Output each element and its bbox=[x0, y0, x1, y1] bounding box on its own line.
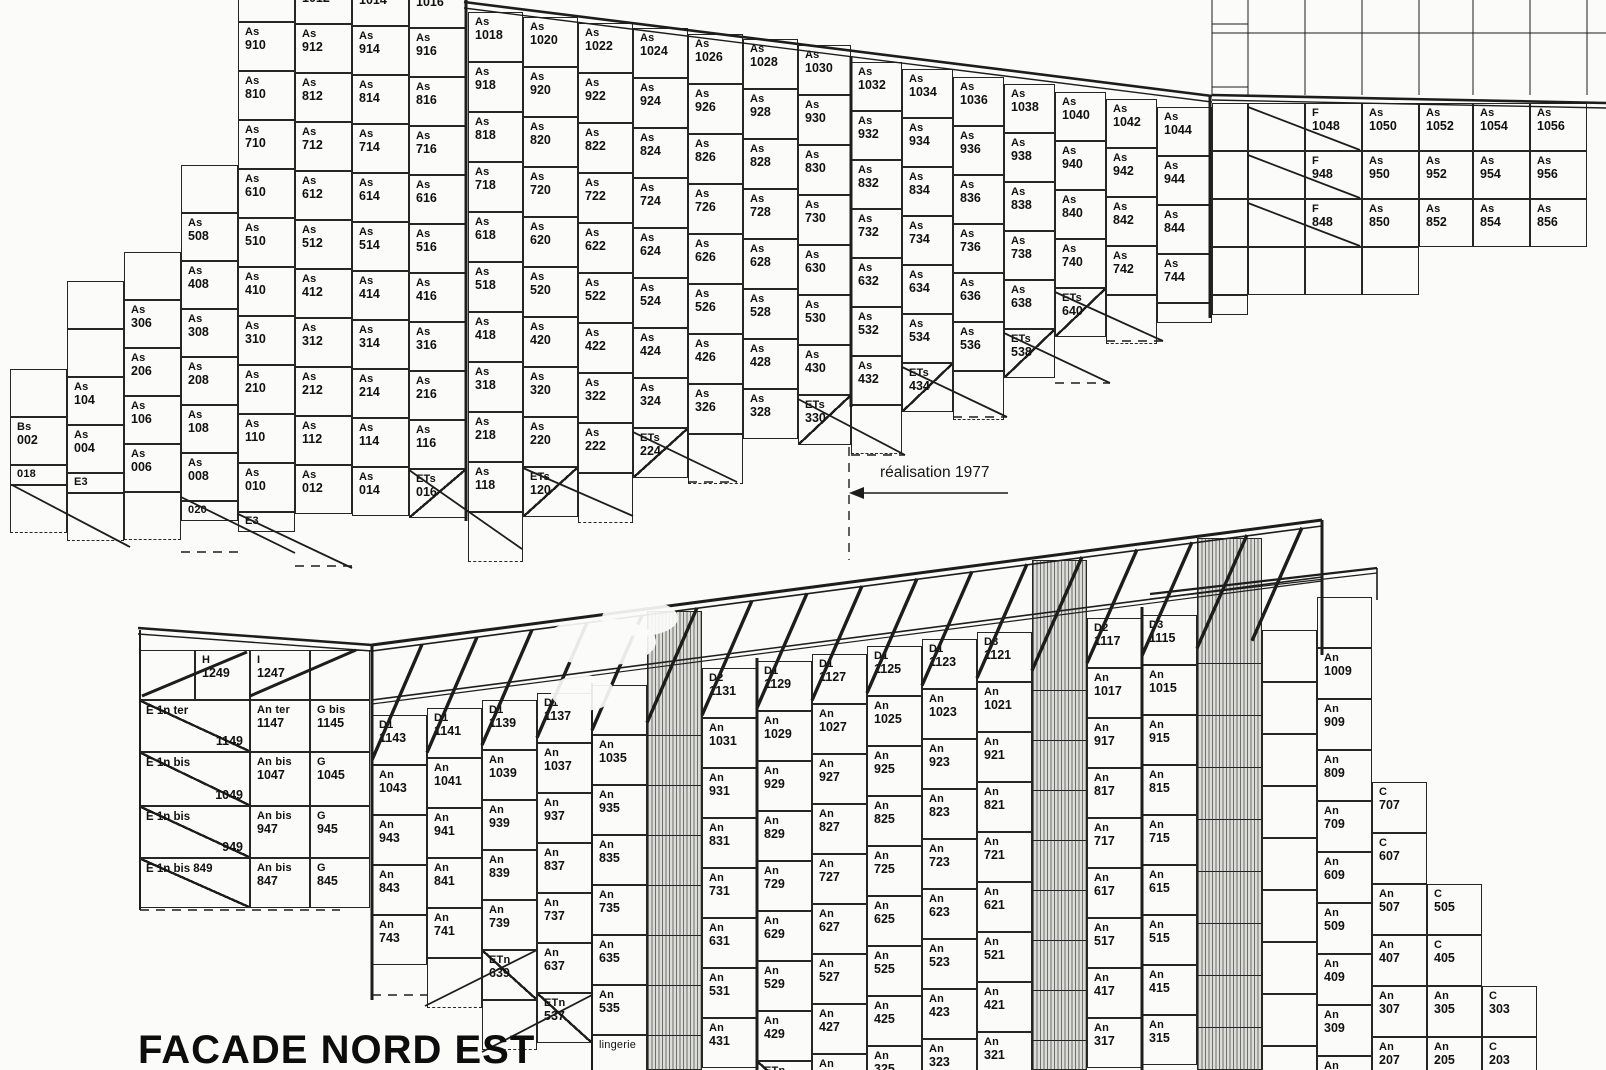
unit-cell-An-207: An207 bbox=[1372, 1037, 1427, 1070]
terrain-cell bbox=[124, 492, 181, 540]
hatch-floor-line bbox=[1032, 940, 1087, 941]
hatch-floor-line bbox=[1032, 990, 1087, 991]
hatch-floor-line bbox=[1197, 715, 1262, 716]
empty-cell bbox=[1262, 1046, 1317, 1070]
unit-cell-As-216: As216 bbox=[409, 371, 466, 420]
unit-cell-As-932: As932 bbox=[851, 111, 902, 160]
unit-cell-An-1015: An1015 bbox=[1142, 665, 1197, 715]
unit-cell-An-1043: An1043 bbox=[372, 765, 427, 815]
unit-cell-An-635: An635 bbox=[592, 935, 647, 985]
unit-cell-As-316: As316 bbox=[409, 322, 466, 371]
unit-cell-As-1030: As1030 bbox=[798, 45, 851, 95]
unit-cell-An-431: An431 bbox=[702, 1018, 757, 1068]
unit-cell-An-bis-847: An bis847 bbox=[250, 858, 310, 908]
unit-cell-As-928: As928 bbox=[743, 89, 798, 139]
unit-cell-As-530: As530 bbox=[798, 295, 851, 345]
unit-cell-An-829: An829 bbox=[757, 811, 812, 861]
unit-cell-As-724: As724 bbox=[633, 178, 688, 228]
unit-cell-Bs-002: Bs002 bbox=[10, 417, 67, 465]
unit-cell-An-825: An825 bbox=[867, 796, 922, 846]
unit-cell-An-ter-1147: An ter1147 bbox=[250, 700, 310, 752]
unit-cell-E3: E3 bbox=[67, 473, 124, 493]
hatch-floor-line bbox=[647, 835, 702, 836]
unit-cell-As-324: As324 bbox=[633, 378, 688, 428]
unit-cell-As-912: As912 bbox=[295, 24, 352, 73]
unit-cell-As-1026: As1026 bbox=[688, 34, 743, 84]
unit-cell-As-1052: As1052 bbox=[1419, 103, 1473, 151]
unit-cell-F-1048: F1048 bbox=[1305, 103, 1362, 151]
unit-cell-As-422: As422 bbox=[578, 323, 633, 373]
unit-cell-An-1029: An1029 bbox=[757, 711, 812, 761]
unit-cell-An-741: An741 bbox=[427, 908, 482, 958]
unit-cell-As-206: As206 bbox=[124, 348, 181, 396]
unit-cell-An-821: An821 bbox=[977, 782, 1032, 832]
unit-cell-An-bis-1047: An bis1047 bbox=[250, 752, 310, 806]
unit-cell-As-638: As638 bbox=[1004, 280, 1055, 329]
unit-cell-As-810: As810 bbox=[238, 71, 295, 120]
unit-cell-An-415: An415 bbox=[1142, 965, 1197, 1015]
unit-cell-As-320: As320 bbox=[523, 367, 578, 417]
unit-cell-As-1020: As1020 bbox=[523, 17, 578, 67]
stair-cell-ETs-538: ETs538 bbox=[1004, 329, 1055, 378]
unit-cell-As-212: As212 bbox=[295, 367, 352, 416]
unit-cell-An-1027: An1027 bbox=[812, 704, 867, 754]
unit-cell-As-104: As104 bbox=[67, 377, 124, 425]
empty-cell bbox=[1248, 151, 1305, 199]
unit-cell-As-712: As712 bbox=[295, 122, 352, 171]
unit-cell-An-715: An715 bbox=[1142, 815, 1197, 865]
unit-cell-As-918: As918 bbox=[468, 62, 523, 112]
unit-cell-C-303: C303 bbox=[1482, 986, 1537, 1037]
empty-cell bbox=[181, 165, 238, 213]
unit-cell-C-405: C405 bbox=[1427, 935, 1482, 986]
stair-cell-ETs-224: ETs224 bbox=[633, 428, 688, 478]
unit-cell-An-321: An321 bbox=[977, 1032, 1032, 1070]
stair-cell: E 1n ter1149 bbox=[140, 700, 250, 752]
stair-cell-ETn-639: ETn639 bbox=[482, 950, 537, 1000]
stairwell-hatch-column bbox=[647, 611, 702, 1070]
annotation-arrowhead bbox=[849, 487, 864, 499]
unit-cell-An-527: An527 bbox=[812, 954, 867, 1004]
unit-cell-As-840: As840 bbox=[1055, 190, 1106, 239]
empty-cell bbox=[1262, 838, 1317, 890]
unit-cell-As-628: As628 bbox=[743, 239, 798, 289]
unit-cell-As-744: As744 bbox=[1157, 254, 1212, 303]
unit-cell-An-1031: An1031 bbox=[702, 718, 757, 768]
unit-cell-D3-1115: D31115 bbox=[1142, 615, 1197, 665]
unit-cell-An-843: An843 bbox=[372, 865, 427, 915]
unit-cell-As-726: As726 bbox=[688, 184, 743, 234]
unit-cell-As-1056: As1056 bbox=[1530, 103, 1587, 151]
unit-cell-As-1036: As1036 bbox=[953, 77, 1004, 126]
unit-cell-As-306: As306 bbox=[124, 300, 181, 348]
unit-cell-An-737: An737 bbox=[537, 893, 592, 943]
unit-cell-An-317: An317 bbox=[1087, 1018, 1142, 1068]
unit-cell-An-621: An621 bbox=[977, 882, 1032, 932]
unit-cell-As-816: As816 bbox=[409, 77, 466, 126]
unit-cell-H-1249: H1249 bbox=[195, 650, 250, 700]
unit-cell-An-1017: An1017 bbox=[1087, 668, 1142, 718]
unit-cell-As-516: As516 bbox=[409, 224, 466, 273]
hatch-floor-line bbox=[1197, 923, 1262, 924]
unit-cell-As-626: As626 bbox=[688, 234, 743, 284]
unit-cell-An-927: An927 bbox=[812, 754, 867, 804]
unit-cell-As-1032: As1032 bbox=[851, 62, 902, 111]
unit-cell-As-1022: As1022 bbox=[578, 23, 633, 73]
unit-cell-As-916: As916 bbox=[409, 28, 466, 77]
unit-cell-As-210: As210 bbox=[238, 365, 295, 414]
unit-cell-D3-1121: D31121 bbox=[977, 632, 1032, 682]
unit-cell-An-517: An517 bbox=[1087, 918, 1142, 968]
unit-cell-An-717: An717 bbox=[1087, 818, 1142, 868]
unit-cell-An-629: An629 bbox=[757, 911, 812, 961]
terrain-cell bbox=[688, 434, 743, 484]
unit-cell-As-914: As914 bbox=[352, 26, 409, 75]
empty-cell bbox=[124, 252, 181, 300]
unit-cell-An-509: An509 bbox=[1317, 903, 1372, 954]
hatch-floor-line bbox=[647, 885, 702, 886]
terrain-cell bbox=[953, 371, 1004, 420]
unit-cell-018: 018 bbox=[10, 465, 67, 485]
unit-cell-An-609: An609 bbox=[1317, 852, 1372, 903]
unit-cell-As-520: As520 bbox=[523, 267, 578, 317]
unit-cell-An-915: An915 bbox=[1142, 715, 1197, 765]
unit-cell-As-312: As312 bbox=[295, 318, 352, 367]
unit-cell-As-006: As006 bbox=[124, 444, 181, 492]
hatch-floor-line bbox=[647, 935, 702, 936]
unit-cell-An-1021: An1021 bbox=[977, 682, 1032, 732]
empty-cell bbox=[1248, 247, 1305, 295]
empty-cell bbox=[1305, 247, 1362, 295]
empty-cell bbox=[1248, 103, 1305, 151]
unit-cell-As-818: As818 bbox=[468, 112, 523, 162]
unit-cell-As-734: As734 bbox=[902, 216, 953, 265]
unit-cell-D1-1127: D11127 bbox=[812, 654, 867, 704]
empty-cell bbox=[1262, 890, 1317, 942]
unit-cell-D1-1143: D11143 bbox=[372, 715, 427, 765]
unit-cell-As-842: As842 bbox=[1106, 197, 1157, 246]
hatch-floor-line bbox=[1197, 767, 1262, 768]
stair-cell-ETs-330: ETs330 bbox=[798, 395, 851, 445]
unit-cell-D1-1129: D11129 bbox=[757, 661, 812, 711]
unit-cell-As-730: As730 bbox=[798, 195, 851, 245]
stair-cell-ETs-016: ETs016 bbox=[409, 469, 466, 518]
unit-cell-As-624: As624 bbox=[633, 228, 688, 278]
facade-title: FACADE NORD EST bbox=[138, 1028, 535, 1070]
unit-cell-An-931: An931 bbox=[702, 768, 757, 818]
unit-cell-As-524: As524 bbox=[633, 278, 688, 328]
unit-cell-As-510: As510 bbox=[238, 218, 295, 267]
unit-cell-As-856: As856 bbox=[1530, 199, 1587, 247]
unit-cell-As-940: As940 bbox=[1055, 141, 1106, 190]
unit-cell-As-852: As852 bbox=[1419, 199, 1473, 247]
unit-cell-As-528: As528 bbox=[743, 289, 798, 339]
unit-cell-As-534: As534 bbox=[902, 314, 953, 363]
unit-cell-As-1024: As1024 bbox=[633, 28, 688, 78]
unit-cell-As-630: As630 bbox=[798, 245, 851, 295]
unit-cell-An-917: An917 bbox=[1087, 718, 1142, 768]
unit-cell-As-1016: As1016 bbox=[409, 0, 466, 28]
unit-cell-As-1010: As1010 bbox=[238, 0, 295, 22]
hatch-floor-line bbox=[1197, 871, 1262, 872]
unit-cell-An-937: An937 bbox=[537, 793, 592, 843]
unit-cell-C-707: C707 bbox=[1372, 782, 1427, 833]
unit-cell-An-709: An709 bbox=[1317, 801, 1372, 852]
unit-cell-An-525: An525 bbox=[867, 946, 922, 996]
facade-drawing: Bs002018As104As004E3As306As206As106As006… bbox=[0, 0, 1606, 1070]
unit-cell-As-636: As636 bbox=[953, 273, 1004, 322]
hatch-floor-line bbox=[647, 985, 702, 986]
unit-cell-As-736: As736 bbox=[953, 224, 1004, 273]
unit-cell-As-942: As942 bbox=[1106, 148, 1157, 197]
unit-cell-An-837: An837 bbox=[537, 843, 592, 893]
unit-cell-An-1035: An1035 bbox=[592, 735, 647, 785]
unit-cell-As-834: As834 bbox=[902, 167, 953, 216]
unit-cell-As-632: As632 bbox=[851, 258, 902, 307]
unit-cell-As-820: As820 bbox=[523, 117, 578, 167]
unit-cell-An-427: An427 bbox=[812, 1004, 867, 1054]
unit-cell-An-425: An425 bbox=[867, 996, 922, 1046]
unit-cell-D1-1123: D11123 bbox=[922, 639, 977, 689]
unit-cell-As-426: As426 bbox=[688, 334, 743, 384]
unit-cell-As-742: As742 bbox=[1106, 246, 1157, 295]
unit-cell-As-710: As710 bbox=[238, 120, 295, 169]
unit-cell-As-926: As926 bbox=[688, 84, 743, 134]
unit-cell-D1-1137: D11137 bbox=[537, 693, 592, 743]
unit-cell-As-428: As428 bbox=[743, 339, 798, 389]
unit-cell-As-832: As832 bbox=[851, 160, 902, 209]
hatch-floor-line bbox=[1197, 819, 1262, 820]
unit-cell-As-728: As728 bbox=[743, 189, 798, 239]
unit-cell-As-1018: As1018 bbox=[468, 12, 523, 62]
unit-cell-As-412: As412 bbox=[295, 269, 352, 318]
unit-cell-G-1045: G1045 bbox=[310, 752, 370, 806]
stair-cell-ETs-120: ETs120 bbox=[523, 467, 578, 517]
unit-cell-As-934: As934 bbox=[902, 118, 953, 167]
unit-cell-As-844: As844 bbox=[1157, 205, 1212, 254]
stair-cell-ETs-640: ETs640 bbox=[1055, 288, 1106, 337]
unit-cell-As-720: As720 bbox=[523, 167, 578, 217]
empty-cell bbox=[1262, 682, 1317, 734]
empty-cell bbox=[1262, 994, 1317, 1046]
unit-cell-As-408: As408 bbox=[181, 261, 238, 309]
unit-cell-As-714: As714 bbox=[352, 124, 409, 173]
unit-cell-An-309: An309 bbox=[1317, 1005, 1372, 1056]
empty-cell bbox=[1362, 247, 1419, 295]
unit-cell-As-314: As314 bbox=[352, 320, 409, 369]
unit-cell-An-bis-947: An bis947 bbox=[250, 806, 310, 858]
unit-cell-An-725: An725 bbox=[867, 846, 922, 896]
unit-cell-As-112: As112 bbox=[295, 416, 352, 465]
empty-cell bbox=[310, 650, 370, 700]
unit-cell-As-616: As616 bbox=[409, 175, 466, 224]
unit-cell-As-420: As420 bbox=[523, 317, 578, 367]
empty-cell bbox=[10, 369, 67, 417]
unit-cell-An-615: An615 bbox=[1142, 865, 1197, 915]
unit-cell-As-308: As308 bbox=[181, 309, 238, 357]
unit-cell-As-518: As518 bbox=[468, 262, 523, 312]
unit-cell-As-924: As924 bbox=[633, 78, 688, 128]
unit-cell-As-106: As106 bbox=[124, 396, 181, 444]
unit-cell-I-1247: I1247 bbox=[250, 650, 310, 700]
unit-cell-As-532: As532 bbox=[851, 307, 902, 356]
unit-cell-As-014: As014 bbox=[352, 467, 409, 516]
unit-cell-An-839: An839 bbox=[482, 850, 537, 900]
unit-cell-An-515: An515 bbox=[1142, 915, 1197, 965]
unit-cell-An-1037: An1037 bbox=[537, 743, 592, 793]
unit-cell-As-1044: As1044 bbox=[1157, 107, 1212, 156]
unit-cell-As-414: As414 bbox=[352, 271, 409, 320]
terrain-cell bbox=[10, 485, 67, 533]
unit-cell-As-218: As218 bbox=[468, 412, 523, 462]
unit-cell-An-739: An739 bbox=[482, 900, 537, 950]
unit-cell-D1-1139: D11139 bbox=[482, 700, 537, 750]
unit-cell-As-526: As526 bbox=[688, 284, 743, 334]
unit-cell-An-205: An205 bbox=[1427, 1037, 1482, 1070]
unit-cell-An-325: An325 bbox=[867, 1046, 922, 1070]
unit-cell-As-1014: As1014 bbox=[352, 0, 409, 26]
unit-cell-As-418: As418 bbox=[468, 312, 523, 362]
unit-cell-An-535: An535 bbox=[592, 985, 647, 1035]
unit-cell-An-929: An929 bbox=[757, 761, 812, 811]
unit-cell-An-423: An423 bbox=[922, 989, 977, 1039]
unit-cell-An-523: An523 bbox=[922, 939, 977, 989]
unit-cell-An-409: An409 bbox=[1317, 954, 1372, 1005]
unit-cell-As-920: As920 bbox=[523, 67, 578, 117]
unit-cell-An-305: An305 bbox=[1427, 986, 1482, 1037]
unit-cell-020: 020 bbox=[181, 501, 238, 521]
unit-cell-As-222: As222 bbox=[578, 423, 633, 473]
unit-cell-As-850: As850 bbox=[1362, 199, 1419, 247]
unit-cell-C-607: C607 bbox=[1372, 833, 1427, 884]
terrain-cell bbox=[1106, 295, 1157, 344]
hatch-floor-line bbox=[1032, 740, 1087, 741]
empty-cell bbox=[592, 685, 647, 735]
unit-cell-An-727: An727 bbox=[812, 854, 867, 904]
unit-cell-As-512: As512 bbox=[295, 220, 352, 269]
unit-cell-An-923: An923 bbox=[922, 739, 977, 789]
unit-cell-G-845: G845 bbox=[310, 858, 370, 908]
unit-cell-As-854: As854 bbox=[1473, 199, 1530, 247]
empty-cell bbox=[1212, 151, 1248, 199]
stair-cell: E 1n bis1049 bbox=[140, 752, 250, 806]
unit-cell-As-220: As220 bbox=[523, 417, 578, 467]
unit-cell-As-108: As108 bbox=[181, 405, 238, 453]
unit-cell-As-424: As424 bbox=[633, 328, 688, 378]
stair-cell-ETn-537: ETn537 bbox=[537, 993, 592, 1043]
unit-cell-As-012: As012 bbox=[295, 465, 352, 514]
unit-cell-As-618: As618 bbox=[468, 212, 523, 262]
unit-cell-F-948: F948 bbox=[1305, 151, 1362, 199]
unit-cell-An-823: An823 bbox=[922, 789, 977, 839]
unit-cell-An-743: An743 bbox=[372, 915, 427, 965]
unit-cell-As-110: As110 bbox=[238, 414, 295, 463]
hatch-floor-line bbox=[1197, 1027, 1262, 1028]
terrain-cell bbox=[468, 512, 523, 562]
unit-cell-An-1009: An1009 bbox=[1317, 648, 1372, 699]
unit-cell-As-1054: As1054 bbox=[1473, 103, 1530, 151]
scan-whiteout-smudge bbox=[544, 618, 656, 666]
unit-cell-D2-1131: D21131 bbox=[702, 668, 757, 718]
unit-cell-F-848: F848 bbox=[1305, 199, 1362, 247]
hatch-floor-line bbox=[647, 735, 702, 736]
unit-cell-An-815: An815 bbox=[1142, 765, 1197, 815]
unit-cell-An-307: An307 bbox=[1372, 986, 1427, 1037]
unit-cell-An-1041: An1041 bbox=[427, 758, 482, 808]
unit-cell-An-521: An521 bbox=[977, 932, 1032, 982]
unit-cell-As-952: As952 bbox=[1419, 151, 1473, 199]
unit-cell-As-430: As430 bbox=[798, 345, 851, 395]
unit-cell-An-637: An637 bbox=[537, 943, 592, 993]
unit-cell-D2-1117: D21117 bbox=[1087, 618, 1142, 668]
unit-cell-An-1025: An1025 bbox=[867, 696, 922, 746]
unit-cell-As-620: As620 bbox=[523, 217, 578, 267]
unit-cell-An-327: An327 bbox=[812, 1054, 867, 1070]
unit-cell-As-718: As718 bbox=[468, 162, 523, 212]
stair-cell: E 1n bis949 bbox=[140, 806, 250, 858]
unit-cell-As-514: As514 bbox=[352, 222, 409, 271]
hatch-floor-line bbox=[1032, 1040, 1087, 1041]
unit-cell-As-822: As822 bbox=[578, 123, 633, 173]
unit-cell-As-322: As322 bbox=[578, 373, 633, 423]
unit-cell-As-944: As944 bbox=[1157, 156, 1212, 205]
unit-cell-As-310: As310 bbox=[238, 316, 295, 365]
unit-cell-An-623: An623 bbox=[922, 889, 977, 939]
unit-cell-As-826: As826 bbox=[688, 134, 743, 184]
unit-cell-As-722: As722 bbox=[578, 173, 633, 223]
hatch-floor-line bbox=[1032, 890, 1087, 891]
unit-cell-C-505: C505 bbox=[1427, 884, 1482, 935]
unit-cell-As-318: As318 bbox=[468, 362, 523, 412]
unit-cell-An-835: An835 bbox=[592, 835, 647, 885]
unit-cell-As-814: As814 bbox=[352, 75, 409, 124]
unit-cell-As-1028: As1028 bbox=[743, 39, 798, 89]
unit-cell-As-930: As930 bbox=[798, 95, 851, 145]
unit-cell-As-410: As410 bbox=[238, 267, 295, 316]
unit-cell-An-625: An625 bbox=[867, 896, 922, 946]
hatch-floor-line bbox=[1197, 975, 1262, 976]
unit-cell-As-954: As954 bbox=[1473, 151, 1530, 199]
terrain-cell bbox=[851, 405, 902, 454]
unit-cell-An-631: An631 bbox=[702, 918, 757, 968]
unit-cell-As-614: As614 bbox=[352, 173, 409, 222]
empty-cell bbox=[1212, 247, 1248, 295]
unit-cell-As-938: As938 bbox=[1004, 133, 1055, 182]
unit-cell-As-738: As738 bbox=[1004, 231, 1055, 280]
terrain-cell bbox=[578, 473, 633, 523]
unit-cell-As-716: As716 bbox=[409, 126, 466, 175]
roofline bbox=[1150, 573, 1377, 599]
empty-cell bbox=[1157, 303, 1212, 323]
unit-cell-As-830: As830 bbox=[798, 145, 851, 195]
unit-cell-An-935: An935 bbox=[592, 785, 647, 835]
realisation-annotation: réalisation 1977 bbox=[880, 464, 989, 482]
room-note-lingerie: lingerie bbox=[592, 1035, 647, 1070]
stair-cell-ETs-434: ETs434 bbox=[902, 363, 953, 412]
terrain-cell bbox=[67, 493, 124, 541]
unit-cell-As-214: As214 bbox=[352, 369, 409, 418]
stair-cell-ETn-329: ETn329 bbox=[757, 1061, 812, 1070]
unit-cell-As-522: As522 bbox=[578, 273, 633, 323]
unit-cell-As-950: As950 bbox=[1362, 151, 1419, 199]
unit-cell-As-416: As416 bbox=[409, 273, 466, 322]
unit-cell-As-328: As328 bbox=[743, 389, 798, 439]
empty-cell bbox=[1212, 103, 1248, 151]
unit-cell-An-507: An507 bbox=[1372, 884, 1427, 935]
hatch-floor-line bbox=[1032, 790, 1087, 791]
unit-cell-As-1034: As1034 bbox=[902, 69, 953, 118]
hatch-floor-line bbox=[1032, 690, 1087, 691]
